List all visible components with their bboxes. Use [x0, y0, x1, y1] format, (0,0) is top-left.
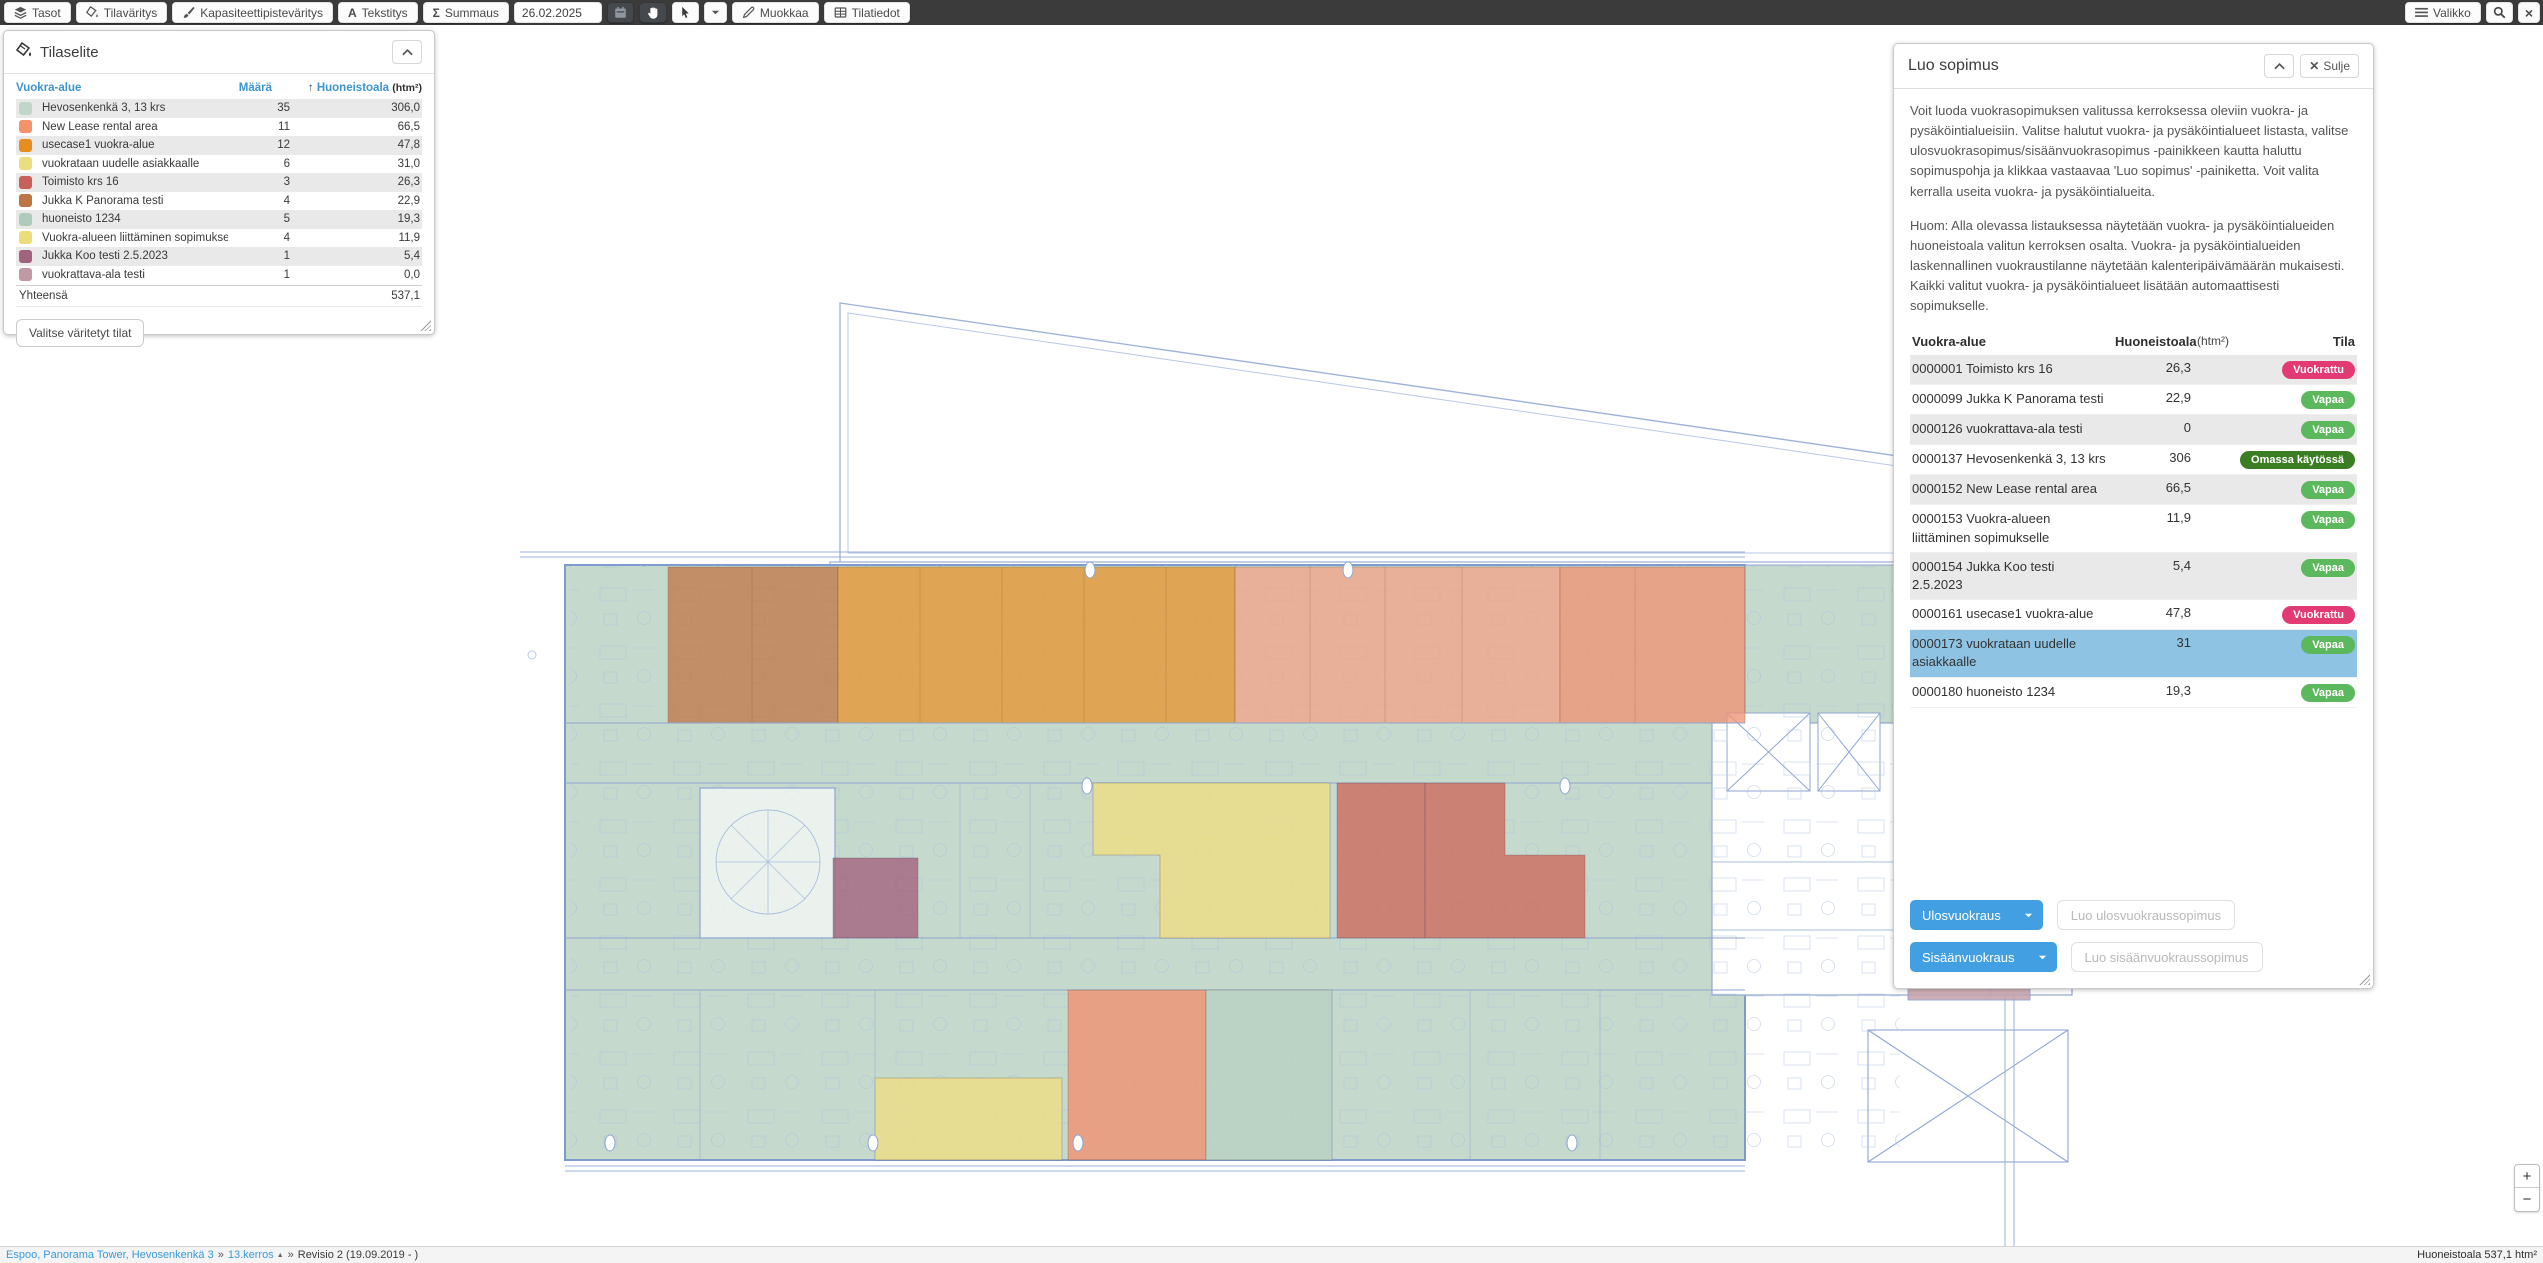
tilavaritys-button[interactable]: Tilaväritys — [76, 2, 168, 23]
sulje-button[interactable]: ✕ Sulje — [2300, 54, 2359, 78]
tasot-button[interactable]: Tasot — [4, 2, 71, 23]
contract-row[interactable]: 0000153 Vuokra-alueen liittäminen sopimu… — [1910, 505, 2357, 552]
contract-row[interactable]: 0000152 New Lease rental area 66,5 Vapaa — [1910, 475, 2357, 505]
col-maara[interactable]: Määrä — [210, 82, 272, 94]
pencil-icon — [742, 6, 755, 19]
contract-row[interactable]: 0000001 Toimisto krs 16 26,3 Vuokrattu — [1910, 355, 2357, 385]
search-icon — [2493, 6, 2506, 19]
col-huoneistoala: Huoneistoala — [2115, 334, 2191, 349]
collapse-legend-button[interactable] — [392, 40, 422, 64]
close-icon: × — [2525, 6, 2533, 20]
table-grid-icon — [834, 6, 847, 19]
plan-area-vuokrataan-2[interactable] — [875, 1078, 1062, 1160]
panel-title: Luo sopimus — [1908, 57, 1999, 75]
valikko-button[interactable]: Valikko — [2405, 2, 2481, 23]
status-badge: Vapaa — [2301, 511, 2355, 529]
color-swatch — [19, 139, 32, 152]
tekstitys-button[interactable]: A Tekstitys — [338, 2, 418, 23]
legend-row[interactable]: Vuokra-alueen liittäminen sopimukselle 4… — [16, 229, 422, 248]
plan-area-toimisto-1[interactable] — [1337, 783, 1425, 938]
status-badge: Vapaa — [2301, 421, 2355, 439]
plan-stairwell — [700, 788, 835, 938]
calendar-icon — [614, 6, 627, 19]
select-cursor-button[interactable] — [672, 2, 699, 23]
legend-row[interactable]: Hevosenkenkä 3, 13 krs 35 306,0 — [16, 99, 422, 118]
col-vuokra-alue[interactable]: Vuokra-alue — [16, 82, 210, 94]
status-badge: Vapaa — [2301, 391, 2355, 409]
color-swatch — [19, 268, 32, 281]
contract-row[interactable]: 0000161 usecase1 vuokra-alue 47,8 Vuokra… — [1910, 600, 2357, 630]
sisaanvuokraus-dropdown-button[interactable]: Sisäänvuokraus — [1910, 942, 2057, 972]
date-input[interactable] — [514, 2, 602, 23]
color-swatch — [19, 157, 32, 170]
chevron-down-icon — [2027, 953, 2057, 962]
legend-row[interactable]: usecase1 vuokra-alue 12 47,8 — [16, 136, 422, 155]
legend-table: Vuokra-alue Määrä ↑ Huoneistoala (htm²) … — [4, 74, 434, 307]
zoom-controls: + − — [2514, 1164, 2540, 1212]
color-swatch — [19, 176, 32, 189]
legend-row[interactable]: Jukka Koo testi 2.5.2023 1 5,4 — [16, 247, 422, 266]
status-badge: Omassa käytössä — [2240, 451, 2355, 469]
ulosvuokraus-dropdown-button[interactable]: Ulosvuokraus — [1910, 900, 2043, 930]
chevron-down-icon — [711, 8, 720, 17]
legend-total-row: Yhteensä 537,1 — [16, 285, 422, 307]
plan-area-huoneisto[interactable] — [1206, 990, 1332, 1160]
contract-row[interactable]: 0000154 Jukka Koo testi 2.5.2023 5,4 Vap… — [1910, 553, 2357, 600]
sort-arrow-icon: ↑ — [308, 82, 314, 94]
breadcrumb-floor-link[interactable]: 13.kerros — [228, 1249, 274, 1261]
col-unit: (htm²) — [2191, 334, 2243, 349]
chevron-down-icon — [2013, 911, 2043, 920]
status-badge: Vuokrattu — [2282, 606, 2355, 624]
status-badge: Vapaa — [2301, 559, 2355, 577]
muokkaa-button[interactable]: Muokkaa — [732, 2, 819, 23]
cursor-arrow-icon — [679, 6, 692, 19]
col-huoneistoala[interactable]: Huoneistoala — [317, 82, 389, 94]
luo-sisaanvuokraussopimus-button[interactable]: Luo sisäänvuokraussopimus — [2071, 942, 2263, 972]
plan-area-new-lease-1[interactable] — [1235, 567, 1560, 723]
luo-sopimus-panel: Luo sopimus ✕ Sulje Voit luoda vuokrasop… — [1893, 43, 2374, 989]
legend-row[interactable]: New Lease rental area 11 66,5 — [16, 118, 422, 137]
paint-drop-icon — [86, 6, 99, 19]
tilatiedot-button[interactable]: Tilatiedot — [824, 2, 910, 23]
zoom-in-button[interactable]: + — [2515, 1165, 2539, 1188]
sigma-icon: Σ — [433, 6, 440, 20]
luo-sopimus-header: Luo sopimus ✕ Sulje — [1894, 44, 2373, 89]
legend-row[interactable]: vuokrataan uudelle asiakkaalle 6 31,0 — [16, 155, 422, 174]
top-toolbar: Tasot Tilaväritys Kapasiteettipistevärit… — [0, 0, 2543, 25]
color-swatch — [19, 120, 32, 133]
calendar-button[interactable] — [607, 2, 634, 23]
legend-table-header: Vuokra-alue Määrä ↑ Huoneistoala (htm²) — [16, 78, 422, 99]
floor-caret-icon[interactable]: ▲ — [277, 1252, 284, 1259]
col-tila: Tila — [2243, 334, 2355, 349]
tilaselite-header: Tilaselite — [4, 31, 434, 74]
pan-hand-button[interactable] — [639, 2, 667, 23]
breadcrumb-location-link[interactable]: Espoo, Panorama Tower, Hevosenkenkä 3 — [6, 1249, 214, 1261]
text-icon: A — [348, 6, 357, 20]
tilaselite-panel: Tilaselite Vuokra-alue Määrä ↑ Huoneisto… — [3, 30, 435, 335]
zoom-out-button[interactable]: − — [2515, 1188, 2539, 1211]
contract-row[interactable]: 0000137 Hevosenkenkä 3, 13 krs 306 Omass… — [1910, 445, 2357, 475]
plan-area-new-lease-3[interactable] — [1068, 990, 1206, 1160]
kapasiteettipistevaritys-button[interactable]: Kapasiteettipisteväritys — [172, 2, 333, 23]
close-icon: ✕ — [2309, 59, 2319, 73]
contract-row[interactable]: 0000126 vuokrattava-ala testi 0 Vapaa — [1910, 415, 2357, 445]
close-toolbar-button[interactable]: × — [2518, 2, 2540, 23]
status-badge: Vapaa — [2301, 684, 2355, 702]
hand-icon — [646, 6, 660, 20]
contract-instructions-1: Voit luoda vuokrasopimuksen valitussa ke… — [1910, 101, 2357, 202]
color-swatch — [19, 102, 32, 115]
summaus-button[interactable]: Σ Summaus — [423, 2, 509, 23]
contract-table: Vuokra-alue Huoneistoala (htm²) Tila 000… — [1910, 330, 2357, 707]
contract-row[interactable]: 0000180 huoneisto 1234 19,3 Vapaa — [1910, 678, 2357, 708]
color-swatch — [19, 250, 32, 263]
luo-ulosvuokraussopimus-button[interactable]: Luo ulosvuokraussopimus — [2057, 900, 2235, 930]
contract-row[interactable]: 0000099 Jukka K Panorama testi 22,9 Vapa… — [1910, 385, 2357, 415]
brush-icon — [182, 6, 195, 19]
color-swatch — [19, 194, 32, 207]
search-button[interactable] — [2486, 2, 2513, 23]
paint-bucket-icon — [16, 42, 32, 62]
breadcrumb-separator: » — [288, 1249, 294, 1261]
col-unit: (htm²) — [392, 82, 422, 94]
legend-row[interactable]: Jukka K Panorama testi 4 22,9 — [16, 192, 422, 211]
revision-text: Revisio 2 (19.09.2019 - ) — [298, 1249, 418, 1261]
menu-icon — [2415, 7, 2428, 18]
cursor-dropdown-button[interactable] — [704, 2, 727, 23]
total-floor-area-text: Huoneistoala 537,1 htm² — [2417, 1249, 2537, 1261]
status-badge: Vapaa — [2301, 636, 2355, 654]
breadcrumb-separator: » — [218, 1249, 224, 1261]
color-swatch — [19, 231, 32, 244]
contract-row-selected[interactable]: 0000173 vuokrataan uudelle asiakkaalle 3… — [1910, 630, 2357, 677]
legend-row[interactable]: vuokrattava-ala testi 1 0,0 — [16, 266, 422, 285]
plan-area-usecase1[interactable] — [838, 567, 1235, 723]
plan-area-new-lease-2[interactable] — [1560, 567, 1745, 723]
color-swatch — [19, 213, 32, 226]
status-badge: Vuokrattu — [2282, 361, 2355, 379]
legend-row[interactable]: huoneisto 1234 5 19,3 — [16, 210, 422, 229]
collapse-contract-button[interactable] — [2264, 54, 2294, 78]
contract-instructions-2: Huom: Alla olevassa listauksessa näytetä… — [1910, 216, 2357, 317]
col-vuokra-alue: Vuokra-alue — [1912, 334, 2115, 349]
panel-title: Tilaselite — [40, 44, 99, 61]
status-bar: Espoo, Panorama Tower, Hevosenkenkä 3 » … — [0, 1246, 2543, 1263]
legend-row[interactable]: Toimisto krs 16 3 26,3 — [16, 173, 422, 192]
status-badge: Vapaa — [2301, 481, 2355, 499]
plan-area-jukka-k-panorama[interactable] — [668, 567, 838, 723]
valitse-varitetyt-tilat-button[interactable]: Valitse väritetyt tilat — [16, 319, 144, 347]
plan-area-jukka-koo[interactable] — [833, 858, 918, 938]
layers-icon — [14, 6, 27, 19]
contract-table-header: Vuokra-alue Huoneistoala (htm²) Tila — [1910, 330, 2357, 355]
